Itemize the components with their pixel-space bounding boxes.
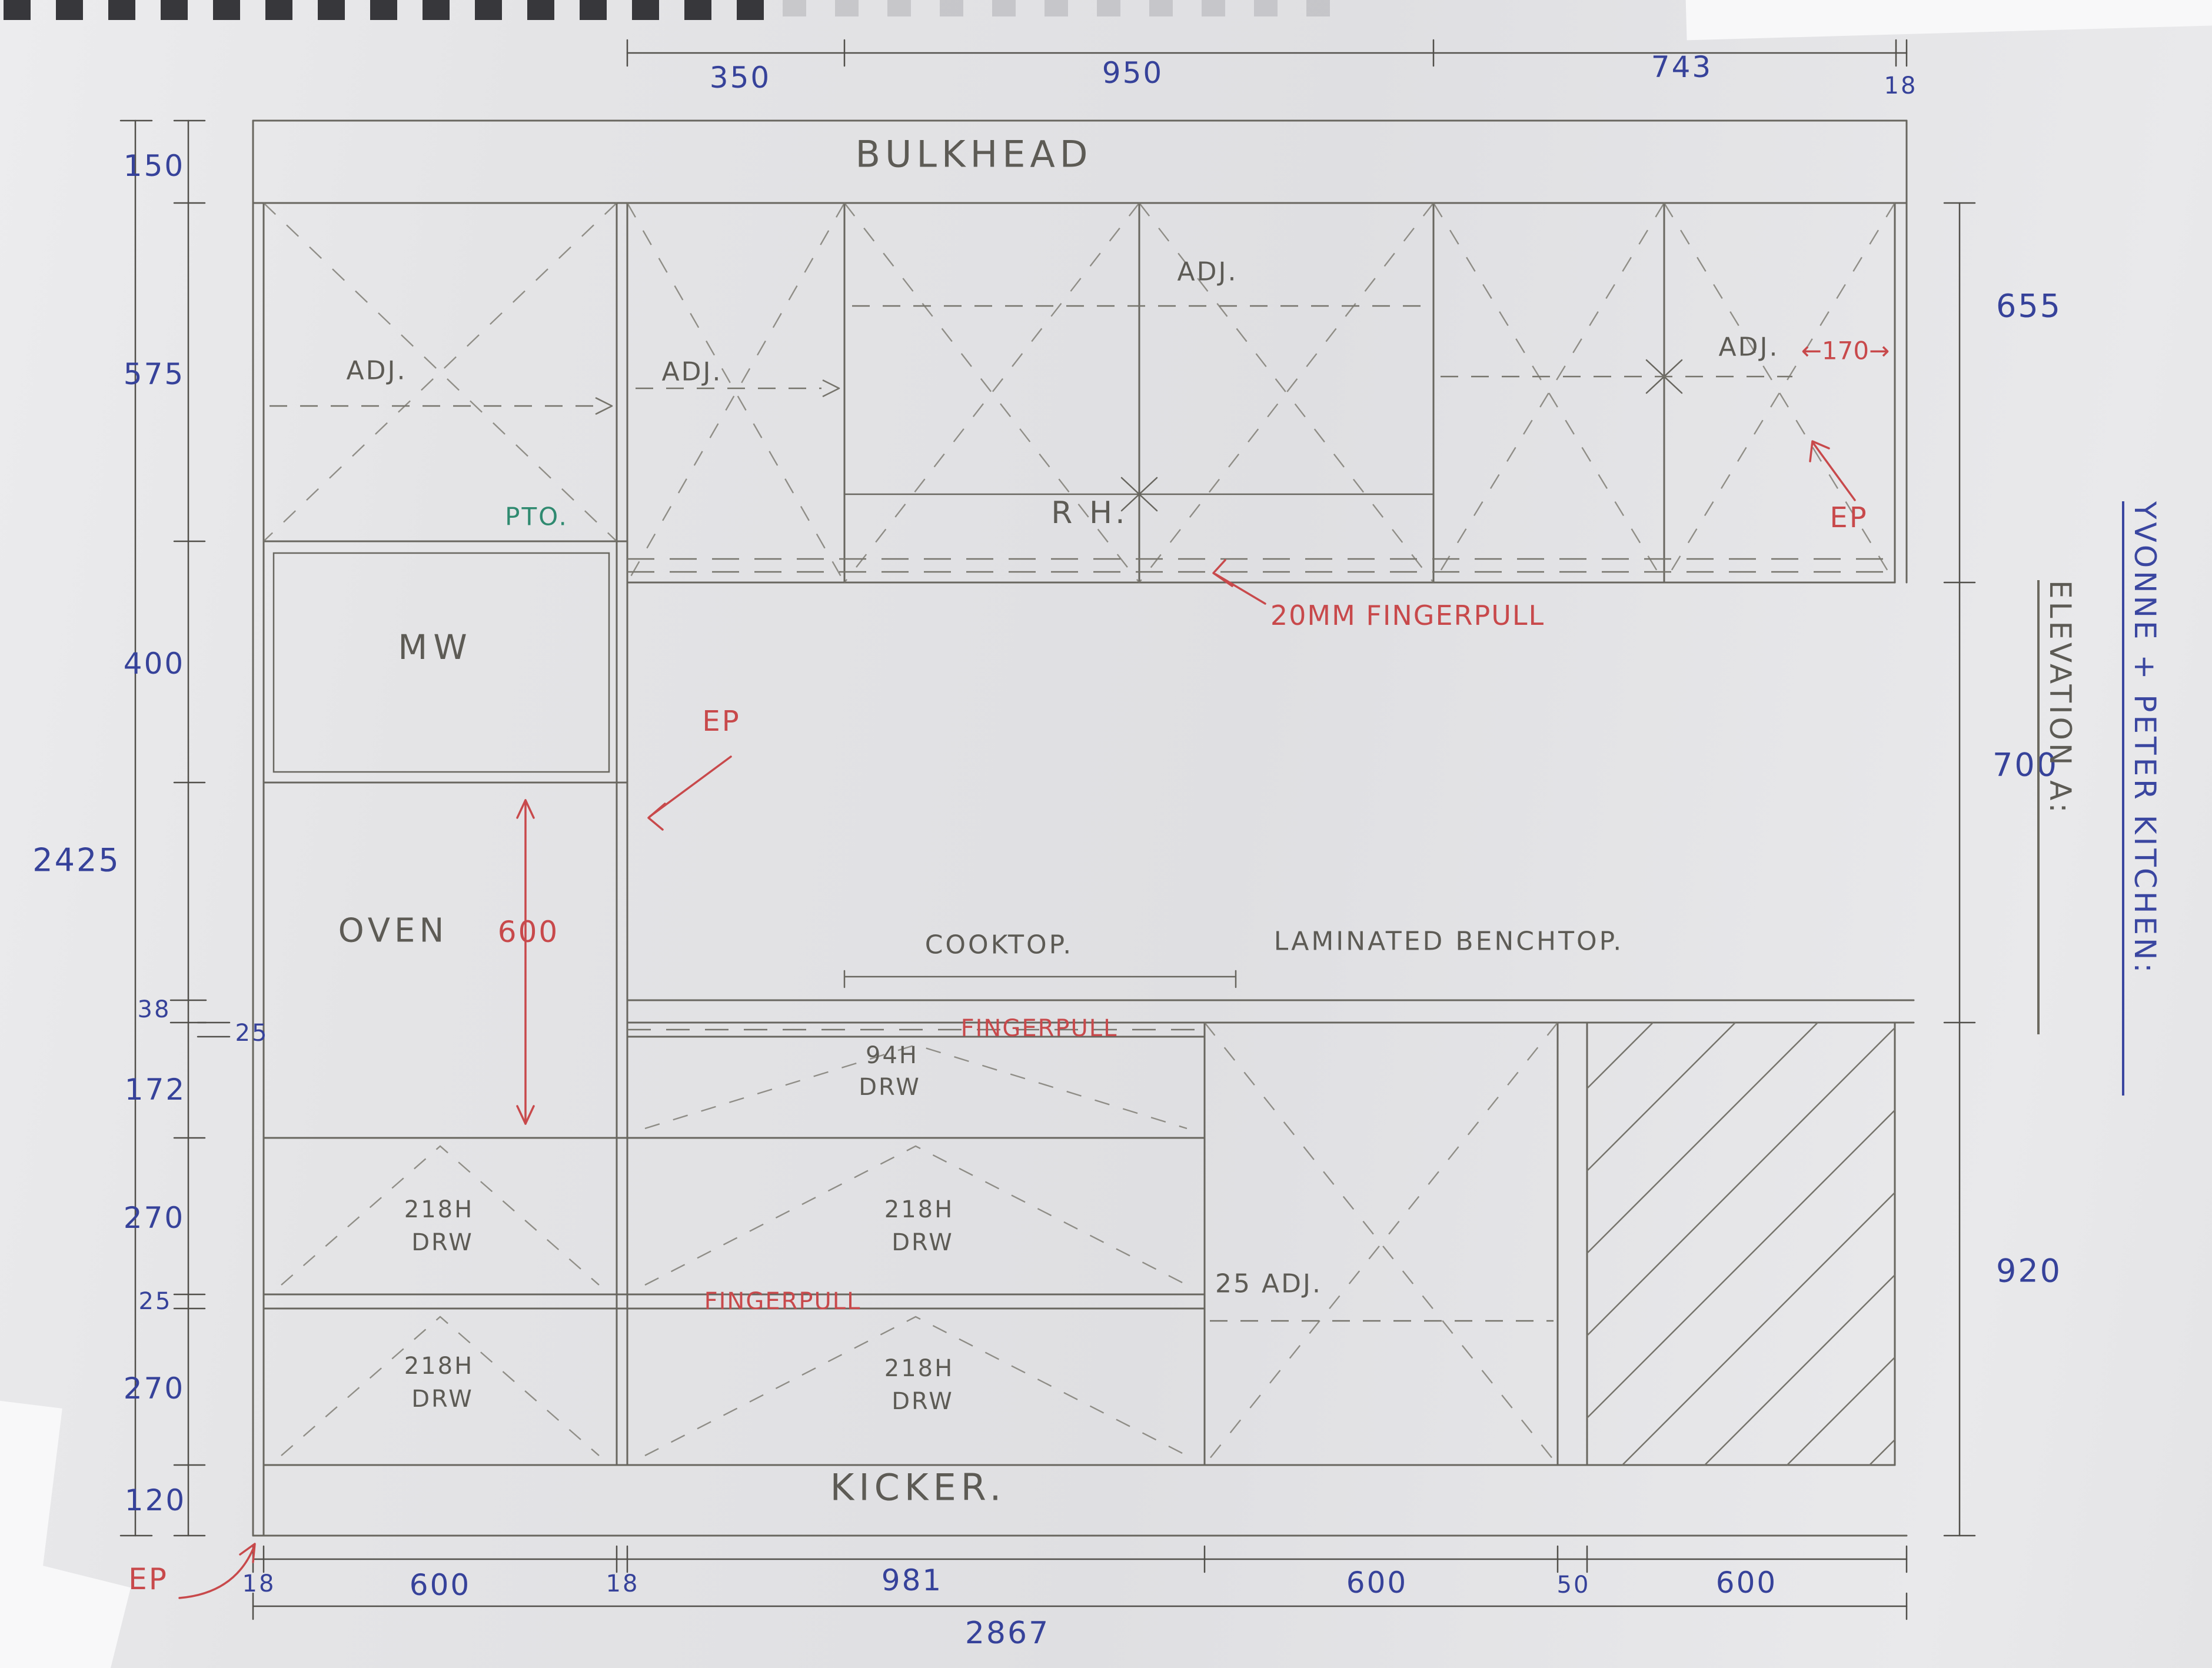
fingerpull-top-label: FINGERPULL <box>961 1015 1118 1042</box>
drawer218-mid1-drw: DRW <box>892 1229 954 1256</box>
cabinet-outlines <box>253 121 1914 1536</box>
dim-left-575: 575 <box>124 357 185 391</box>
project-title: YVONNE + PETER KITCHEN: <box>2122 501 2162 1096</box>
pto-label: PTO. <box>505 502 568 531</box>
dim-left-overall: 2425 <box>32 842 120 879</box>
dimension-lines <box>121 40 1975 1619</box>
drawer94-height: 94H <box>866 1042 919 1069</box>
drawer218-mid2-height: 218H <box>884 1355 954 1382</box>
dim-bottom-18b: 18 <box>606 1570 640 1597</box>
dim-right-655: 655 <box>1996 288 2062 325</box>
benchtop-label: LAMINATED BENCHTOP. <box>1274 927 1624 957</box>
dim-left-270b: 270 <box>124 1371 185 1406</box>
dim-top-743: 743 <box>1651 50 1712 84</box>
sheet-title: ELEVATION A: <box>2037 580 2077 1034</box>
dim-left-270a: 270 <box>124 1201 185 1235</box>
ep-arrow-right <box>1814 444 1855 500</box>
oven-height-dim: 600 <box>498 915 559 949</box>
dim-bottom-600a: 600 <box>410 1568 471 1602</box>
oven-label: OVEN <box>338 912 448 950</box>
dim-left-25a: 25 <box>235 1020 269 1047</box>
dim-top-350: 350 <box>710 61 771 95</box>
dim-left-38: 38 <box>138 996 171 1023</box>
cooktop-label: COOKTOP. <box>925 930 1074 960</box>
dim-bottom-18a: 18 <box>242 1570 276 1597</box>
dim-bottom-600b: 600 <box>1346 1566 1408 1600</box>
drawer218-left1-drw: DRW <box>411 1229 474 1256</box>
drawer218-mid2-drw: DRW <box>892 1388 954 1415</box>
dim-bottom-50: 50 <box>1557 1572 1591 1599</box>
dim-bottom-981: 981 <box>882 1563 943 1597</box>
dim-top-950: 950 <box>1102 56 1163 90</box>
drawer218-left2-drw: DRW <box>411 1386 474 1413</box>
fingerpull-20mm-label: 20MM FINGERPULL <box>1270 600 1545 631</box>
ep-label-right: EP <box>1830 501 1868 534</box>
drawing-linework <box>0 0 2212 1668</box>
drawer218-mid1-height: 218H <box>884 1196 954 1223</box>
dim-left-150: 150 <box>124 149 185 183</box>
dim-left-120: 120 <box>125 1483 186 1517</box>
dim-right-920: 920 <box>1996 1253 2062 1290</box>
ep-label-middle: EP <box>702 705 740 738</box>
adjustable-shelf-lines <box>270 306 1895 1321</box>
kicker-label: KICKER. <box>830 1466 1006 1509</box>
dim-left-25b: 25 <box>139 1288 172 1315</box>
microwave-label: MW <box>398 627 473 667</box>
adj-label-743: ADJ. <box>1719 332 1779 362</box>
adj-base-label: 25 ADJ. <box>1215 1269 1322 1299</box>
panel-gap-170: ←170→ <box>1801 337 1890 365</box>
bulkhead-label: BULKHEAD <box>855 133 1092 176</box>
adj-label-950: ADJ. <box>1177 257 1238 287</box>
hatch-lines <box>1587 1023 1895 1465</box>
drawer218-left1-height: 218H <box>404 1196 474 1223</box>
dim-bottom-overall: 2867 <box>965 1616 1050 1651</box>
fingerpull-mid-label: FINGERPULL <box>704 1288 861 1315</box>
dim-left-400: 400 <box>124 647 185 681</box>
adj-label-350: ADJ. <box>662 357 723 387</box>
dim-left-172: 172 <box>125 1073 186 1107</box>
door-swing-lines <box>264 203 1895 1465</box>
adj-label-tall: ADJ. <box>347 356 407 386</box>
dim-top-18: 18 <box>1884 72 1918 99</box>
ep-label-bottom-left: EP <box>128 1562 168 1596</box>
kitchen-elevation-drawing: BULKHEAD KICKER. 350 950 743 18 2425 150… <box>0 0 2212 1668</box>
drawer94-drw: DRW <box>859 1074 921 1101</box>
drawer218-left2-height: 218H <box>404 1353 474 1380</box>
dim-bottom-600c: 600 <box>1716 1566 1777 1600</box>
hinge-label: R H. <box>1051 495 1128 531</box>
